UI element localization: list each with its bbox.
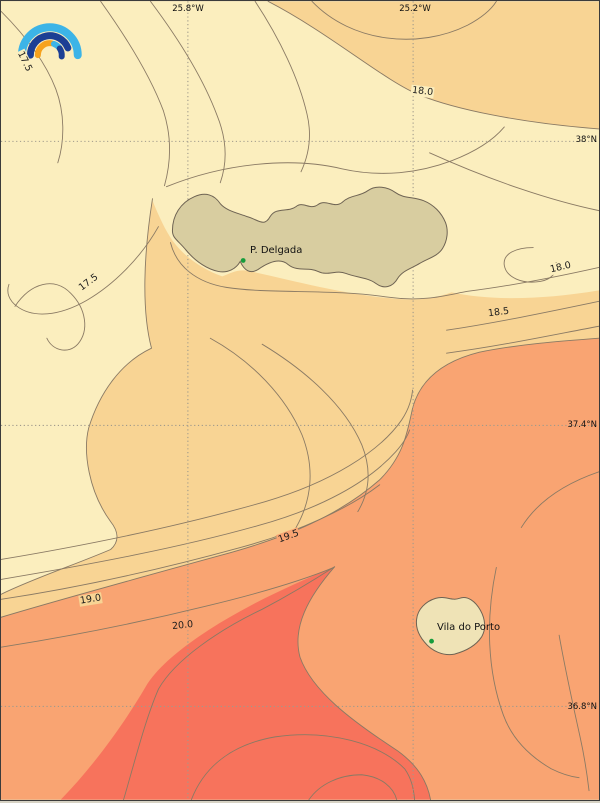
tick-lat-36-8n: 36.8°N	[553, 702, 597, 712]
tick-lon-25-2w: 25.2°W	[395, 4, 435, 14]
tick-lat-37-4n: 37.4°N	[553, 420, 597, 430]
city-label-p-delgada: P. Delgada	[250, 245, 302, 256]
city-dot-vila-do-porto	[429, 639, 434, 644]
tick-lon-25-8w: 25.8°W	[168, 4, 208, 14]
logo-inner-navy-arc	[60, 48, 62, 56]
map-figure: 25.8°W 25.2°W 38°N 37.4°N 36.8°N 17.5 17…	[0, 0, 600, 801]
city-dot-p-delgada	[241, 258, 246, 263]
map-canvas	[1, 1, 599, 800]
city-label-vila-do-porto: Vila do Porto	[437, 622, 500, 633]
tick-lat-38n: 38°N	[557, 135, 597, 145]
